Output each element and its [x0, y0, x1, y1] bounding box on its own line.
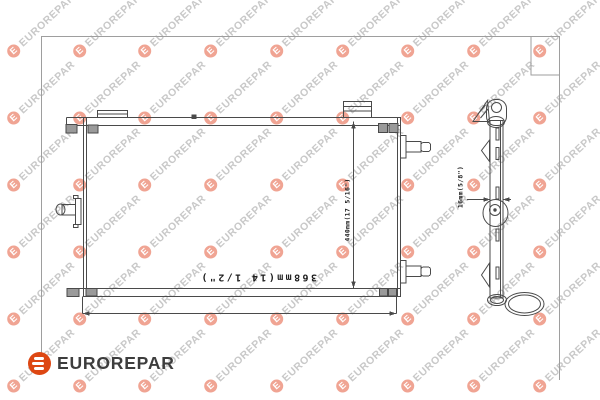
product-image: EEUROREPAREEUROREPAREEUROREPAREEUROREPAR… — [0, 0, 600, 400]
front-view — [56, 102, 431, 316]
width-dimension-line — [83, 289, 397, 316]
side-tab — [482, 263, 490, 287]
condenser-body-outline — [84, 118, 401, 297]
height-dimension-line — [351, 122, 356, 289]
top-right-pipe-fitting — [401, 136, 431, 159]
bottom-left-fittings — [67, 289, 97, 297]
bottom-right-fittings — [380, 289, 397, 297]
depth-dimension-label: 16mm(5/8") — [457, 166, 465, 208]
dimension-labels: 368mm(14 1/2") 440mm(17 5/16") 16mm(5/8"… — [199, 166, 464, 283]
middle-mount — [483, 200, 508, 227]
side-tab — [482, 140, 490, 162]
width-dimension-label: 368mm(14 1/2") — [199, 272, 317, 283]
top-right-fittings — [379, 124, 399, 133]
bottom-ring — [505, 293, 544, 316]
frame-border — [42, 36, 560, 380]
title-block — [531, 37, 560, 76]
tick-mark — [192, 115, 197, 120]
brand-logo: EUROREPAR — [28, 352, 175, 375]
side-view — [467, 100, 544, 316]
height-dimension-label: 440mm(17 5/16") — [344, 178, 352, 241]
left-pipe-fitting — [56, 196, 81, 228]
bottom-right-pipe-fitting — [401, 261, 431, 284]
top-right-bracket — [344, 102, 372, 118]
eurorepar-logo-icon — [28, 352, 51, 375]
technical-drawing: 368mm(14 1/2") 440mm(17 5/16") 16mm(5/8"… — [0, 0, 600, 400]
brand-name: EUROREPAR — [57, 353, 175, 374]
